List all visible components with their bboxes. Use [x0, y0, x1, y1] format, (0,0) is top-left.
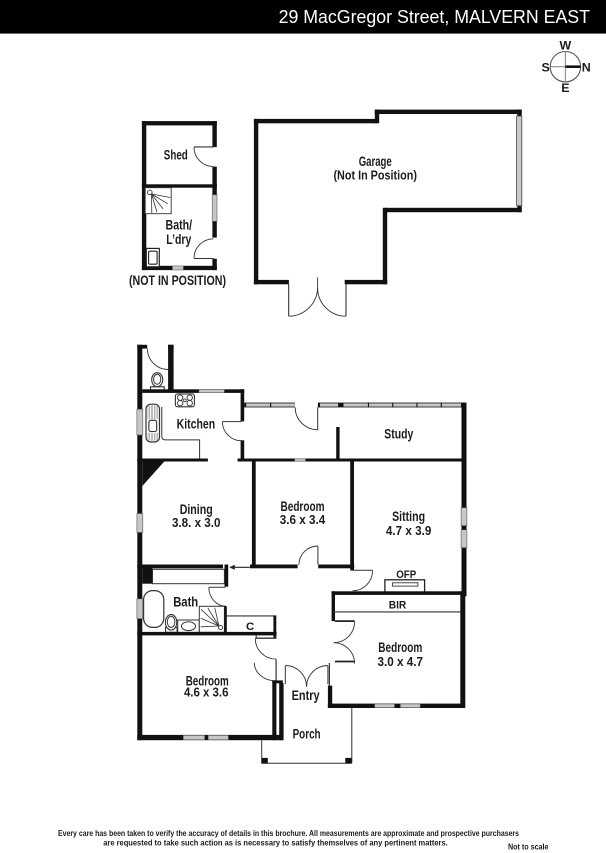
svg-text:Entry: Entry [292, 688, 320, 703]
svg-text:29 MacGregor Street, MALVERN E: 29 MacGregor Street, MALVERN EAST [279, 7, 590, 27]
svg-text:Every care has been taken to v: Every care has been taken to verify the … [58, 828, 519, 838]
svg-text:Bedroom: Bedroom [378, 640, 422, 655]
svg-text:4.6 x 3.6: 4.6 x 3.6 [184, 685, 229, 700]
svg-text:OFP: OFP [396, 569, 416, 581]
svg-text:Garage: Garage [359, 154, 392, 169]
svg-text:N: N [582, 61, 591, 75]
svg-text:Shed: Shed [164, 148, 188, 163]
svg-text:4.7 x 3.9: 4.7 x 3.9 [386, 523, 432, 538]
svg-text:Study: Study [384, 427, 413, 442]
svg-text:(NOT IN POSITION): (NOT IN POSITION) [129, 273, 226, 288]
svg-text:3.0 x 4.7: 3.0 x 4.7 [378, 654, 424, 669]
svg-text:are requested to take such act: are requested to take such action as is … [103, 838, 448, 848]
svg-text:Sitting: Sitting [392, 509, 425, 524]
svg-text:3.8. x 3.0: 3.8. x 3.0 [172, 515, 221, 530]
svg-text:L’dry: L’dry [166, 232, 191, 247]
svg-text:C: C [246, 621, 254, 633]
svg-text:Bath: Bath [173, 594, 198, 609]
svg-text:Bath/: Bath/ [166, 218, 193, 233]
svg-text:E: E [561, 81, 569, 95]
svg-text:BIR: BIR [389, 600, 407, 612]
svg-text:3.6 x 3.4: 3.6 x 3.4 [280, 512, 326, 527]
svg-text:Porch: Porch [293, 727, 321, 742]
svg-text:S: S [541, 61, 549, 75]
svg-text:Kitchen: Kitchen [177, 416, 216, 431]
svg-text:(Not In Position): (Not In Position) [333, 168, 417, 183]
svg-text:Not to scale: Not to scale [508, 841, 549, 851]
svg-text:W: W [560, 38, 572, 52]
